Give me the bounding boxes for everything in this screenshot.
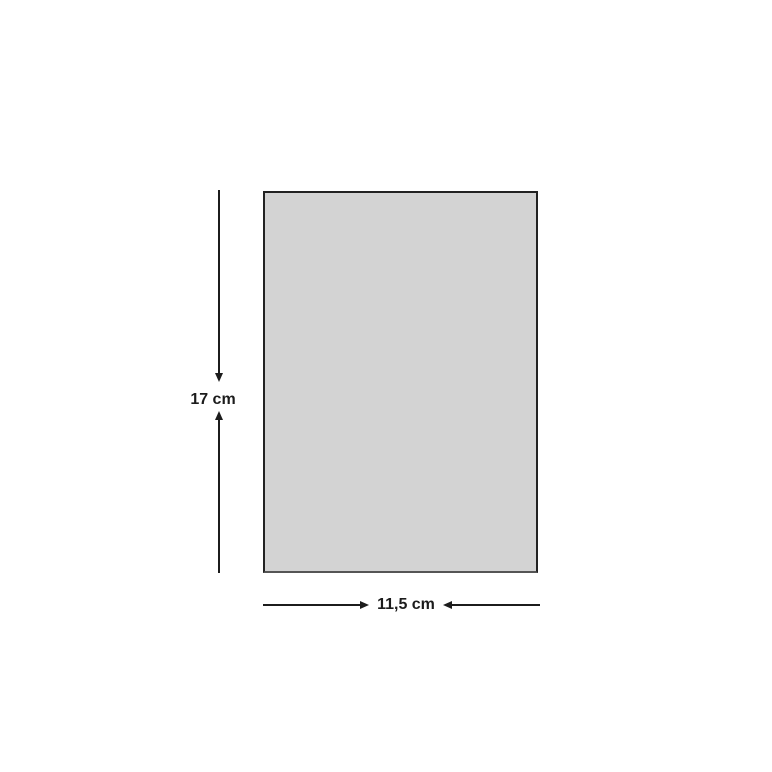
height-dimension-label: 17 cm	[181, 391, 245, 409]
arrow-right-icon	[360, 601, 369, 609]
width-dimension-label: 11,5 cm	[370, 596, 442, 614]
diagram-canvas: 17 cm 11,5 cm	[0, 0, 772, 772]
width-dimension-line-right	[451, 604, 540, 606]
height-dimension-line-top	[218, 190, 220, 374]
height-dimension-line-bottom	[218, 419, 220, 573]
arrow-down-icon	[215, 373, 223, 382]
rectangle-shape	[263, 191, 538, 573]
width-dimension-line-left	[263, 604, 360, 606]
